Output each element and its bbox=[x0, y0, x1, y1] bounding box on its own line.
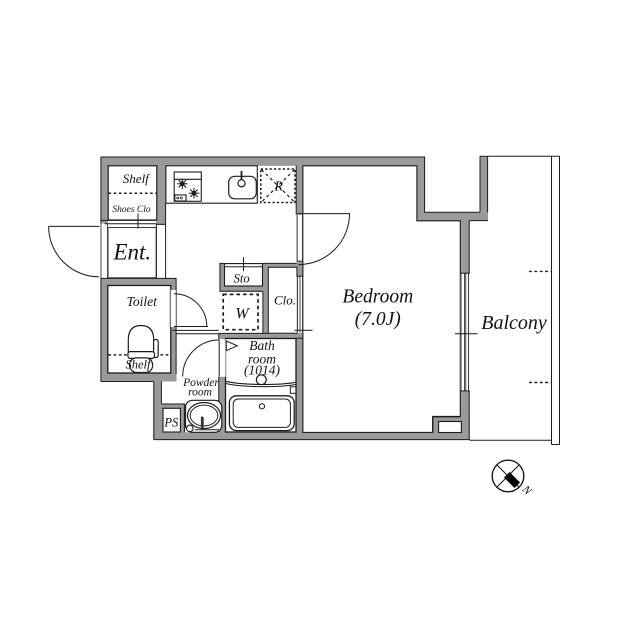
svg-text:W: W bbox=[235, 306, 250, 323]
svg-text:R: R bbox=[274, 180, 284, 195]
svg-text:Shoes Clo: Shoes Clo bbox=[112, 205, 151, 215]
svg-text:Clo.: Clo. bbox=[274, 292, 296, 307]
svg-text:room: room bbox=[188, 387, 212, 399]
svg-text:PS: PS bbox=[163, 416, 179, 430]
svg-text:Shelf: Shelf bbox=[123, 171, 151, 186]
svg-text:(7.0J): (7.0J) bbox=[355, 309, 401, 330]
svg-text:Bedroom: Bedroom bbox=[342, 287, 413, 308]
svg-text:Toilet: Toilet bbox=[127, 294, 159, 309]
svg-text:Sto: Sto bbox=[234, 271, 250, 285]
svg-text:(1014): (1014) bbox=[244, 363, 280, 378]
svg-text:Ent.: Ent. bbox=[112, 240, 151, 265]
svg-text:Shelf: Shelf bbox=[126, 357, 153, 371]
svg-text:Balcony: Balcony bbox=[481, 312, 547, 334]
